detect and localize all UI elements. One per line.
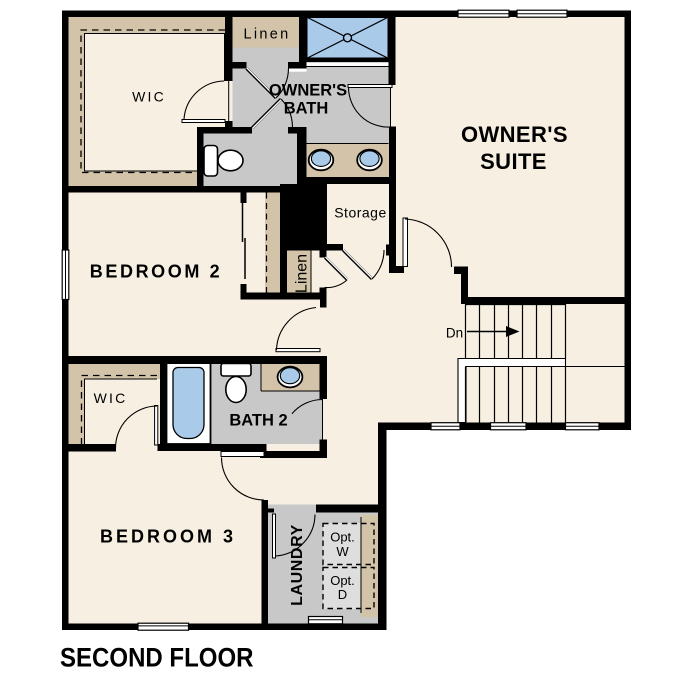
svg-text:WIC: WIC	[94, 390, 128, 406]
svg-text:SUITE: SUITE	[480, 149, 547, 174]
svg-text:Storage: Storage	[334, 205, 387, 221]
svg-text:OWNER'S: OWNER'S	[269, 82, 347, 100]
svg-text:BEDROOM 2: BEDROOM 2	[90, 261, 222, 281]
svg-text:Dn: Dn	[446, 326, 463, 341]
svg-text:LAUNDRY: LAUNDRY	[289, 524, 306, 606]
svg-text:BATH: BATH	[284, 100, 329, 118]
svg-text:W: W	[336, 544, 349, 559]
svg-text:SECOND FLOOR: SECOND FLOOR	[60, 643, 254, 673]
svg-text:D: D	[338, 587, 347, 602]
svg-text:Opt.: Opt.	[330, 530, 355, 545]
svg-text:BATH 2: BATH 2	[229, 412, 287, 430]
svg-text:Linen: Linen	[244, 26, 291, 42]
svg-text:Linen: Linen	[294, 254, 311, 293]
svg-text:WIC: WIC	[132, 88, 166, 104]
svg-text:BEDROOM 3: BEDROOM 3	[100, 527, 236, 547]
svg-text:Opt.: Opt.	[330, 573, 355, 588]
svg-text:OWNER'S: OWNER'S	[461, 122, 568, 147]
